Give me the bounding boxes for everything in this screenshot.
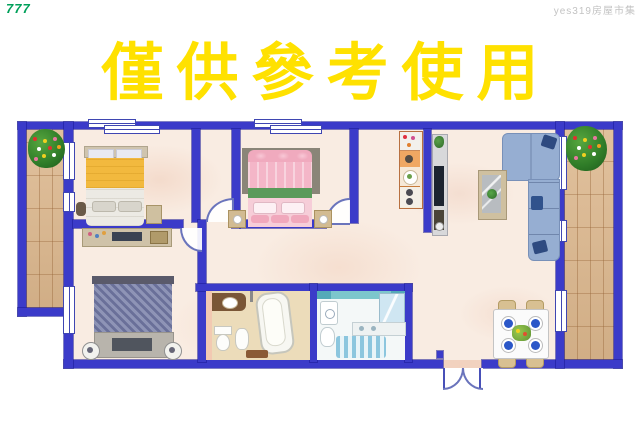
wall-bedroom1-right [192,129,200,222]
shower-pole [250,291,253,302]
speaker-icon [164,342,182,360]
bed1-blanket [86,158,144,188]
window-bedroom2-top-b [270,125,322,134]
console-plant-icon [434,136,444,148]
toilet-bowl [320,327,335,347]
wall-entrance-stop [437,351,443,358]
plant-icon [566,126,607,171]
wall-kitchen-living-divider [424,129,431,232]
watermark-top-left: 777 [6,1,31,16]
table-plant-icon [487,189,497,199]
bed2-blanket [248,162,312,188]
wall-outer-right [614,122,622,368]
bath-mat [246,350,268,358]
bed3-headboard [92,276,174,284]
watermark-top-right: yes319房屋市集 [554,2,636,17]
stove-pan-icon [400,151,420,167]
toilet-bowl [216,334,230,351]
bed2-nightstand [228,210,246,228]
mirror-panel [379,293,405,325]
bed2-pillow [253,202,277,214]
wall-bathrooms-top [196,284,412,291]
vanity-items [88,232,92,236]
door-leaf-entrance-right [479,368,481,388]
reference-only-title: 僅供參考使用 [0,22,640,112]
wall-bedroom2-right [350,129,358,223]
shower-mat [336,336,386,358]
floor-plan-image: 777 yes319房屋市集 僅供參考使用 [0,0,640,436]
door-leaf-entrance-left [443,368,445,388]
sofa-pillow [531,196,543,210]
bed1-nightstand [146,205,162,224]
plant-icon [28,129,65,168]
window-bedroom1-top-b [104,125,160,134]
door-arc-entrance-left [443,368,464,390]
bed1-cushion [92,201,116,212]
kitchen-sink-icon [400,167,420,186]
console-vase [435,222,444,231]
bed2-canopy [248,150,312,162]
stove-burners-icon [400,186,420,207]
food-plate [512,325,531,341]
wall-bathroom2-right [405,284,412,362]
bed1-cushion [118,201,142,212]
vanity-box [150,231,168,244]
coffee-table [478,170,507,220]
dining-table [493,309,549,359]
bed2-nightstand [314,210,332,228]
bed2-pillow [281,202,305,214]
bath-counter [352,322,406,336]
bed2-cushions [251,215,269,223]
bidet [235,328,249,350]
window-bedroom3-left [63,286,75,334]
bathroom2-teal-corners [317,291,331,299]
window-dining-right [555,290,567,332]
wall-outer-left [18,122,26,316]
wall-bathroom-divider [310,284,317,362]
bed1-side-item [76,202,86,216]
speaker-icon [82,342,100,360]
tv-icon [434,166,444,206]
entrance-threshold [443,360,482,368]
bed3-bench-item [112,338,152,351]
fridge-icon [400,132,420,151]
vanity-screen [112,232,142,241]
bathroom1-sink-counter [212,293,246,311]
wall-outer-bottom-left-of-door [64,360,443,368]
washer-icon [320,301,338,325]
window-bedroom1-left-small [63,192,75,212]
bed3-blanket [94,284,172,332]
